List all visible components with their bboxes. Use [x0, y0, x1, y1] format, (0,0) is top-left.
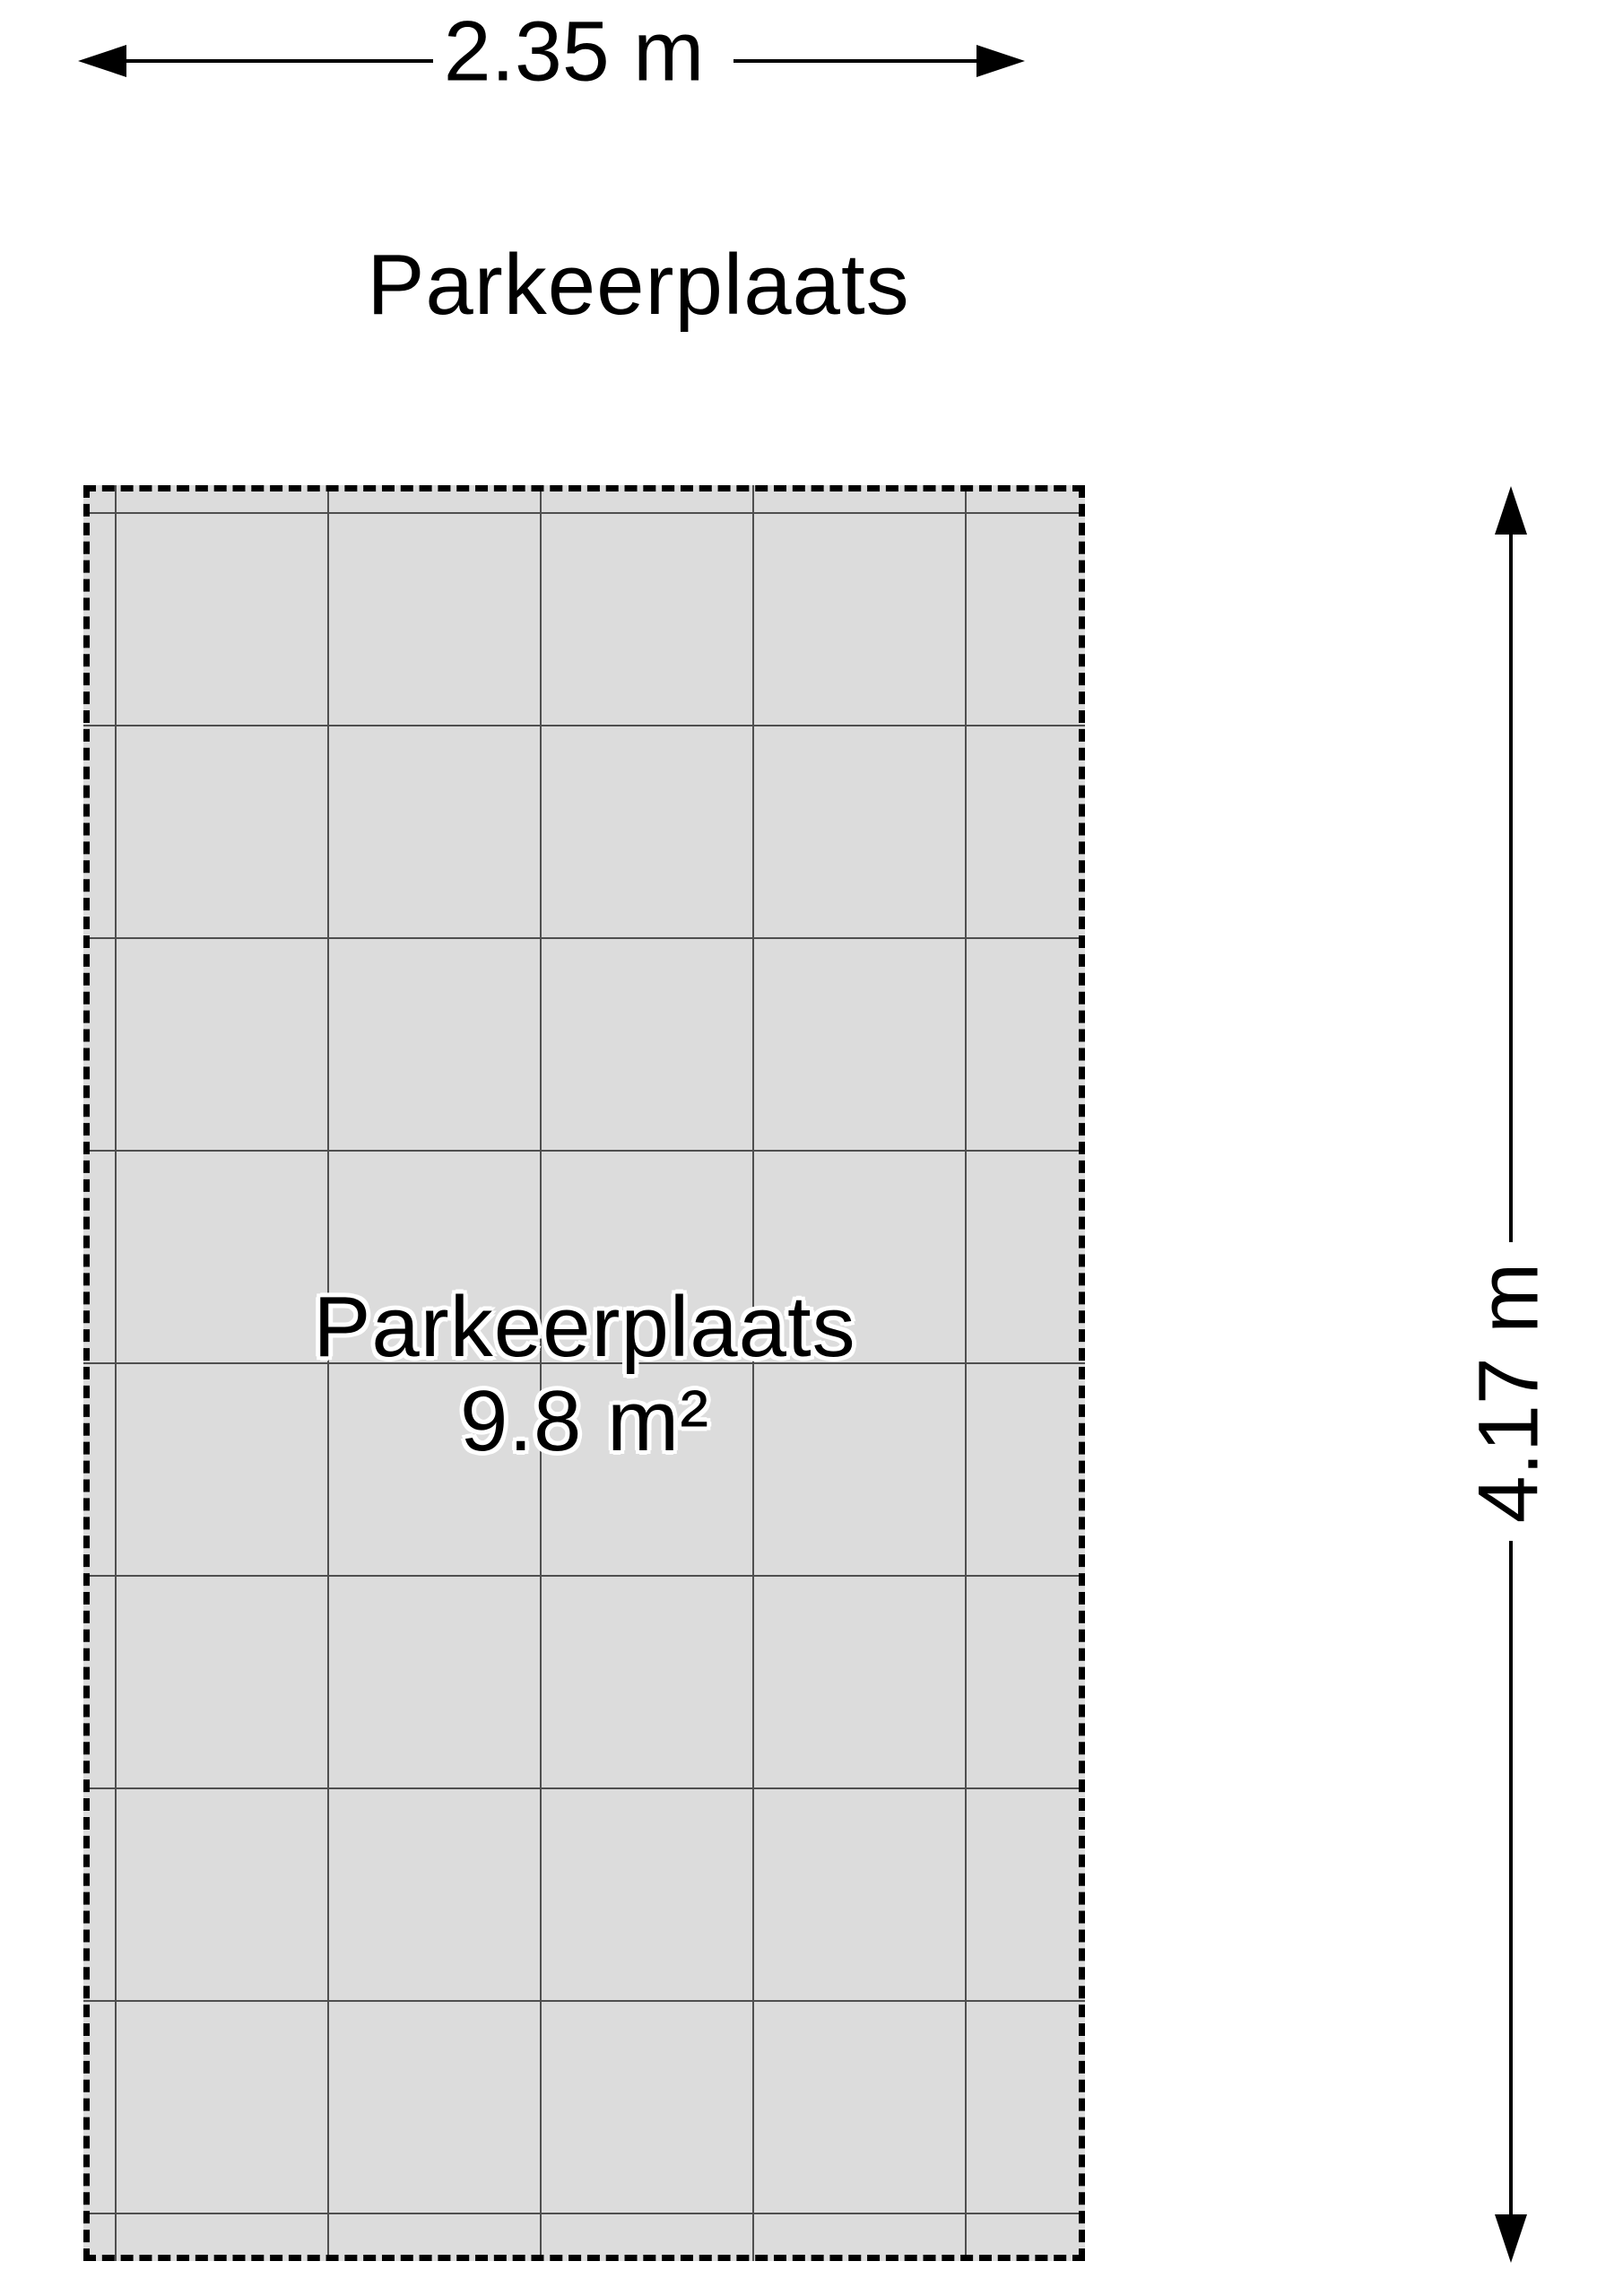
width-dimension-line-right: [733, 59, 978, 63]
room-area-label: 9.8 m²: [313, 1374, 855, 1468]
room-name-label: Parkeerplaats: [313, 1280, 855, 1374]
floor-plan-canvas: 2.35 m Parkeerplaats Parkeerplaats 9.8 m…: [0, 0, 1623, 2296]
arrowhead-up-icon: [1495, 486, 1527, 535]
height-dimension-line-top: [1509, 533, 1513, 1242]
width-dimension-label: 2.35 m: [444, 4, 704, 101]
height-dimension-label: 4.17 m: [1461, 1263, 1558, 1523]
arrowhead-down-icon: [1495, 2214, 1527, 2263]
arrowhead-right-icon: [976, 45, 1025, 77]
plan-title: Parkeerplaats: [367, 236, 909, 335]
room-label: Parkeerplaats 9.8 m²: [313, 1280, 855, 1468]
height-dimension-line-bottom: [1509, 1541, 1513, 2216]
width-dimension-line-left: [123, 59, 433, 63]
arrowhead-left-icon: [78, 45, 126, 77]
